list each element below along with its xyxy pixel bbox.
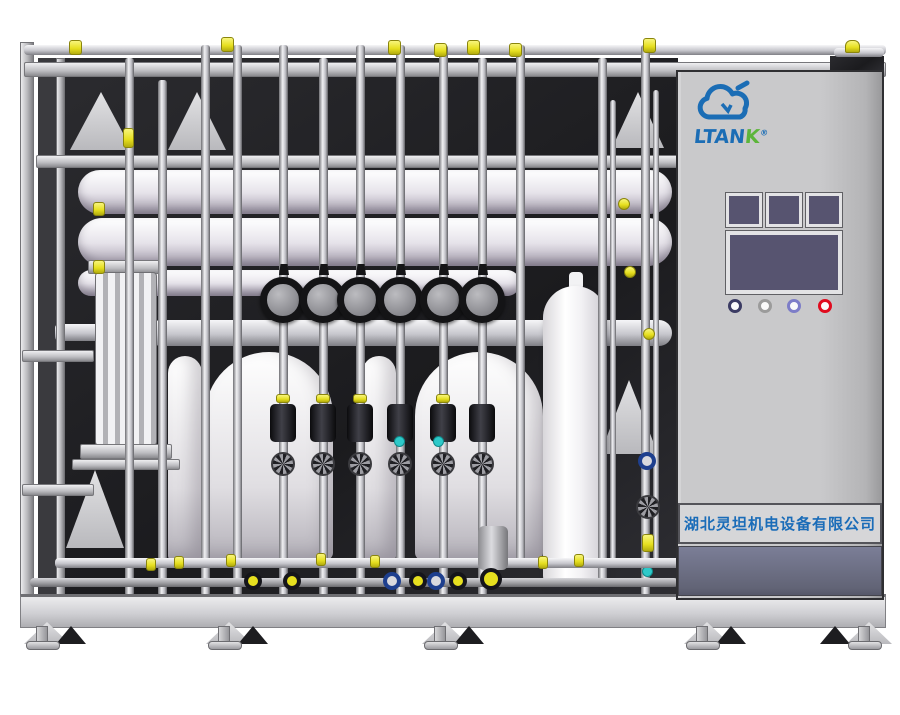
hmi-screen-small — [806, 193, 842, 227]
valve-handle — [538, 556, 548, 569]
valve-handle — [69, 40, 82, 55]
bottom-valve-knob — [283, 572, 301, 590]
valve-handle — [370, 555, 380, 568]
bottom-rail — [30, 578, 678, 587]
left-stub-beam — [22, 350, 94, 362]
valve-handle — [316, 394, 330, 403]
brand-text: LTANK® — [693, 126, 769, 148]
vertical-pipe — [158, 80, 167, 596]
bottom-valve-knob — [480, 568, 502, 590]
membrane-vessel — [78, 170, 672, 214]
indicator-lamp — [787, 299, 801, 313]
left-stub-beam — [22, 484, 94, 496]
top-rail-pipe — [24, 45, 886, 55]
flange-fitting — [470, 452, 494, 476]
clamp-stub — [319, 264, 329, 275]
sensor-dot — [433, 436, 444, 447]
flange-fitting — [388, 452, 412, 476]
diaphragm-valve — [310, 404, 336, 442]
vertical-pipe — [201, 45, 210, 596]
pipe-elbow — [618, 198, 630, 210]
vertical-pipe — [478, 58, 487, 596]
leveling-foot-pad — [848, 641, 882, 650]
bottom-valve-knob — [449, 572, 467, 590]
valve-handle — [276, 394, 290, 403]
bottom-valve-knob — [427, 572, 445, 590]
cabinet-lower-panel — [678, 546, 882, 596]
clamp-stub — [356, 264, 366, 275]
indicator-lamp — [818, 299, 832, 313]
clamp-stub — [279, 264, 289, 275]
company-nameplate: 湖北灵坦机电设备有限公司 — [678, 503, 882, 544]
brand-text-accent: K — [744, 126, 761, 148]
blue-ring-valve — [638, 452, 656, 470]
vertical-pipe — [610, 100, 616, 560]
membrane-vessel — [78, 218, 672, 266]
valve-handle — [434, 43, 447, 57]
valve-handle — [226, 554, 236, 567]
bottom-valve-knob — [244, 572, 262, 590]
hmi-screen-main — [726, 231, 842, 294]
pipe-elbow — [643, 328, 655, 340]
clamp-fitting — [459, 277, 505, 323]
valve-handle — [123, 128, 134, 148]
vertical-pipe — [653, 90, 659, 560]
valve-handle — [93, 260, 105, 274]
flange-fitting — [271, 452, 295, 476]
registered-mark: ® — [760, 129, 769, 138]
pump-body — [478, 526, 508, 570]
clamp-stub — [478, 264, 488, 275]
flange-fitting — [348, 452, 372, 476]
pipe-elbow — [845, 40, 860, 53]
leveling-foot-pad — [424, 641, 458, 650]
leveling-foot-pad — [26, 641, 60, 650]
valve-handle — [642, 534, 654, 552]
flange-fitting — [311, 452, 335, 476]
clamp-stub — [439, 264, 449, 275]
diaphragm-valve — [430, 404, 456, 442]
valve-handle — [316, 553, 326, 566]
valve-handle — [353, 394, 367, 403]
clamp-stub — [396, 264, 406, 275]
valve-handle — [467, 40, 480, 55]
frame-post-left-inner — [56, 58, 65, 598]
company-name-label: 湖北灵坦机电设备有限公司 — [684, 513, 876, 534]
clamp-fitting — [377, 277, 423, 323]
sensor-dot — [394, 436, 405, 447]
valve-handle — [221, 37, 234, 52]
valve-handle — [388, 40, 401, 55]
pipe-elbow — [624, 266, 636, 278]
valve-handle — [643, 38, 656, 53]
diaphragm-valve — [347, 404, 373, 442]
vertical-pipe — [516, 45, 525, 560]
leveling-foot-pad — [686, 641, 720, 650]
valve-handle — [436, 394, 450, 403]
vertical-pipe — [319, 58, 328, 596]
equipment-render-scene: LTANK® 湖北灵坦机电设备有限公司 — [0, 0, 900, 715]
hmi-screen-small — [766, 193, 802, 227]
filter-cylinder — [168, 356, 202, 560]
flange-fitting — [636, 495, 660, 519]
valve-handle — [146, 558, 156, 571]
hmi-screen-small — [726, 193, 762, 227]
valve-handle — [574, 554, 584, 567]
bottom-valve-knob — [383, 572, 401, 590]
leveling-foot-pad — [208, 641, 242, 650]
valve-handle — [93, 202, 105, 216]
indicator-lamp — [758, 299, 772, 313]
brand-text-main: LTAN — [693, 126, 746, 148]
vertical-pipe — [598, 58, 607, 580]
valve-handle — [509, 43, 522, 57]
frame-post-left — [20, 42, 34, 628]
cloud-logo-icon — [694, 80, 756, 126]
bottom-valve-knob — [409, 572, 427, 590]
foot-shadow — [820, 626, 850, 644]
indicator-lamp — [728, 299, 742, 313]
diaphragm-valve — [270, 404, 296, 442]
flange-fitting — [431, 452, 455, 476]
diaphragm-valve — [469, 404, 495, 442]
valve-handle — [174, 556, 184, 569]
vertical-pipe — [233, 45, 242, 596]
